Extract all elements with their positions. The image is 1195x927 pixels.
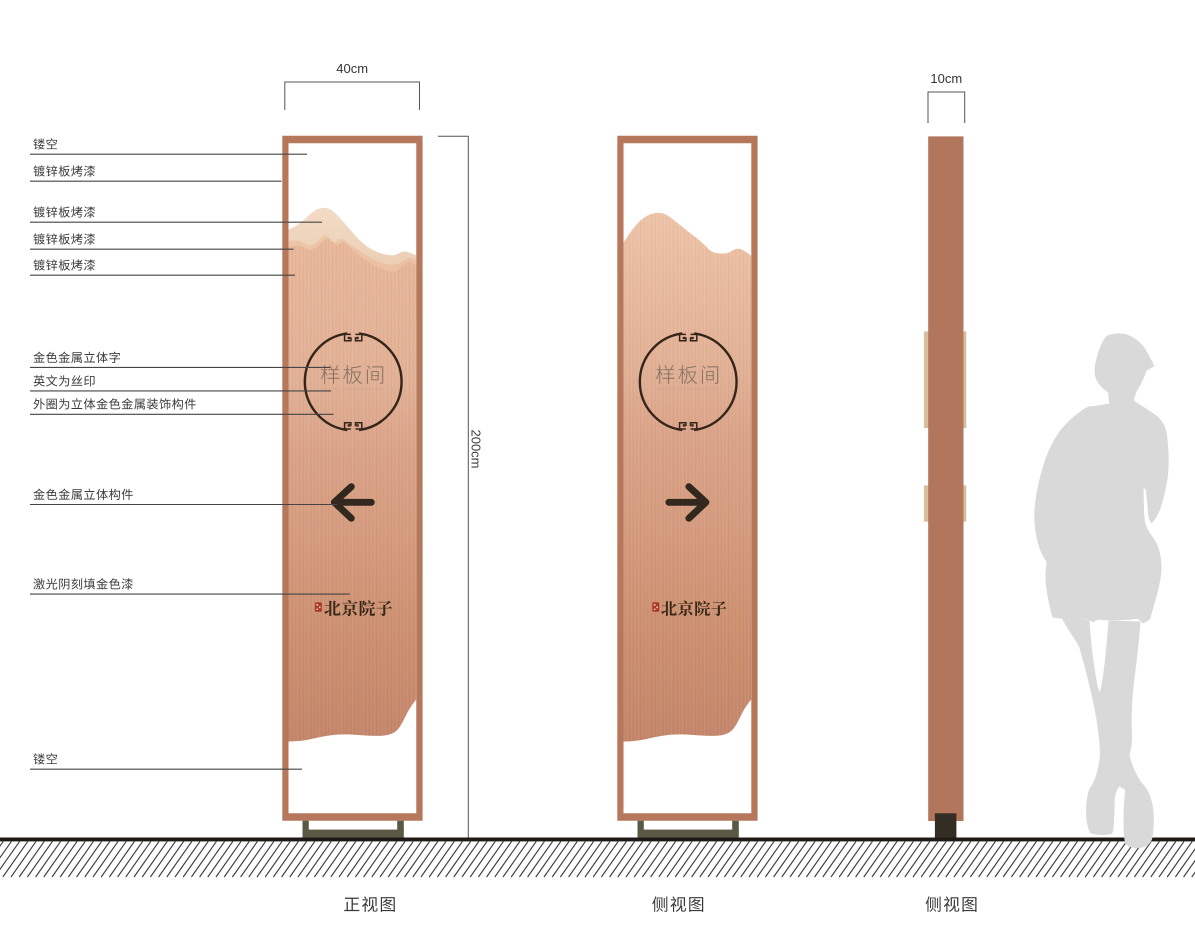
svg-text:MODEL ROOM DISPLAY: MODEL ROOM DISPLAY xyxy=(323,387,383,392)
svg-text:MODEL ROOM DISPLAY: MODEL ROOM DISPLAY xyxy=(658,387,718,392)
svg-text:10cm: 10cm xyxy=(930,71,962,86)
svg-text:40cm: 40cm xyxy=(336,61,368,76)
svg-text:200cm: 200cm xyxy=(469,429,484,468)
